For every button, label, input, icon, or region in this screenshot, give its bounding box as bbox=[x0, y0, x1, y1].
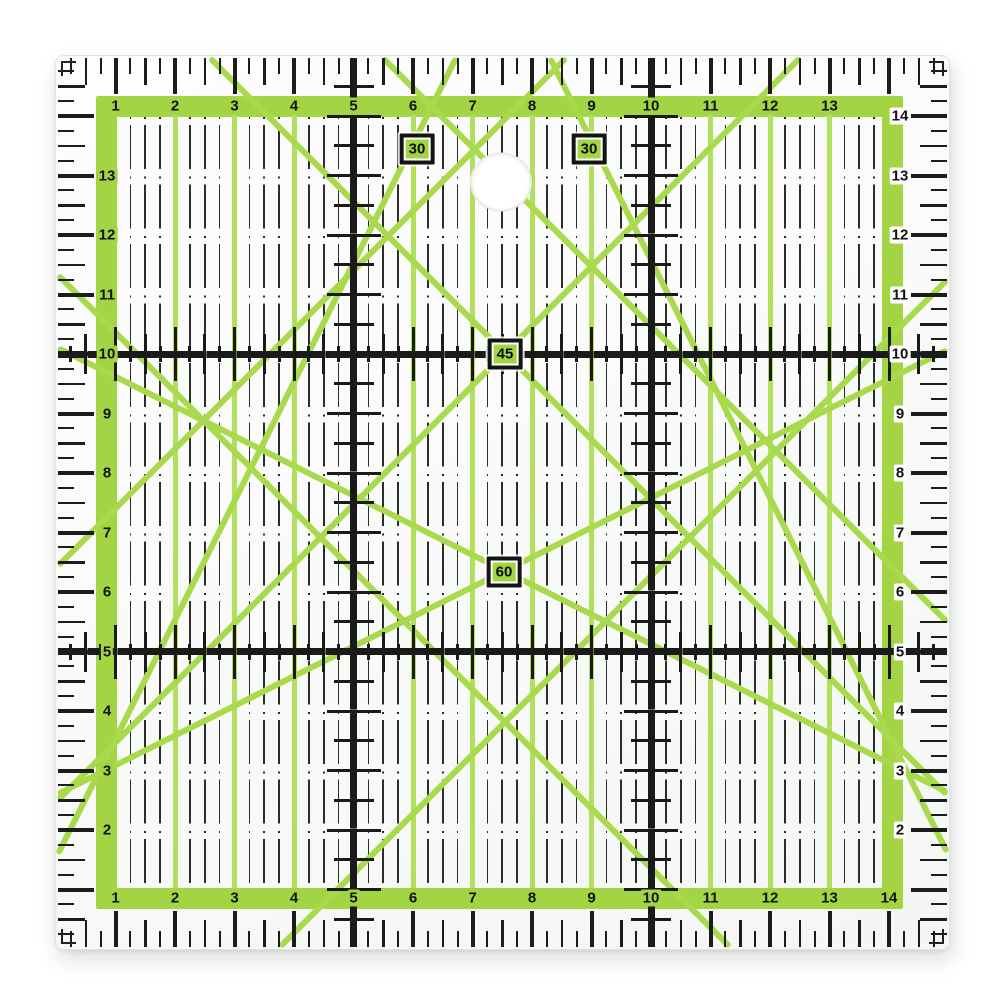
crosshair-tick bbox=[412, 625, 415, 679]
crosshair-tick bbox=[813, 644, 816, 660]
edge-tick-right bbox=[931, 636, 947, 638]
angle-label-30-left: 30 bbox=[406, 140, 429, 159]
edge-tick-bottom bbox=[248, 931, 250, 947]
crosshair-tick bbox=[624, 650, 678, 653]
edge-tick-left bbox=[58, 709, 94, 713]
edge-tick-left bbox=[58, 859, 85, 862]
crosshair-tick bbox=[382, 334, 385, 374]
scale-number-left: 8 bbox=[101, 465, 113, 482]
edge-tick-bottom bbox=[457, 931, 459, 947]
edge-tick-bottom bbox=[918, 920, 921, 947]
edge-tick-right bbox=[911, 233, 947, 237]
edge-tick-bottom bbox=[709, 911, 713, 947]
grid-dash-column bbox=[546, 117, 547, 888]
edge-tick-left bbox=[58, 561, 85, 564]
corner-mark-icon bbox=[61, 61, 76, 76]
edge-tick-top bbox=[129, 58, 131, 74]
edge-tick-right bbox=[920, 204, 947, 207]
edge-tick-top bbox=[338, 58, 340, 74]
edge-tick-top bbox=[858, 58, 861, 85]
edge-tick-bottom bbox=[382, 920, 385, 947]
edge-tick-top bbox=[709, 58, 713, 94]
grid-line-green-vertical bbox=[292, 115, 297, 888]
edge-tick-bottom bbox=[501, 920, 504, 947]
edge-tick-bottom bbox=[576, 931, 578, 947]
crosshair-tick bbox=[456, 346, 459, 362]
edge-tick-top bbox=[814, 58, 816, 74]
crosshair-tick bbox=[783, 346, 786, 362]
edge-tick-right bbox=[911, 888, 947, 892]
edge-tick-right bbox=[931, 576, 947, 578]
crosshair-tick bbox=[278, 346, 281, 362]
edge-tick-top bbox=[308, 58, 310, 74]
edge-tick-right bbox=[920, 145, 947, 148]
edge-tick-bottom bbox=[649, 911, 653, 947]
grid-line-green-vertical bbox=[530, 115, 535, 888]
scale-number-left: 13 bbox=[97, 167, 118, 184]
edge-tick-top bbox=[576, 58, 578, 74]
edge-tick-top bbox=[501, 58, 504, 85]
edge-tick-top bbox=[649, 58, 653, 94]
grid-dash-column bbox=[278, 117, 279, 888]
edge-tick-top bbox=[680, 58, 683, 85]
edge-tick-left bbox=[58, 903, 74, 905]
crosshair-tick bbox=[694, 346, 697, 362]
scale-number-left: 10 bbox=[97, 346, 118, 363]
crosshair-tick bbox=[334, 501, 374, 504]
edge-tick-left bbox=[58, 427, 74, 429]
crosshair-tick bbox=[293, 327, 296, 381]
crosshair-tick bbox=[575, 346, 578, 362]
crosshair-tick bbox=[456, 644, 459, 660]
edge-tick-top bbox=[724, 58, 726, 74]
crosshair-tick bbox=[327, 591, 381, 594]
edge-tick-left bbox=[58, 546, 74, 548]
edge-tick-bottom bbox=[338, 931, 340, 947]
edge-tick-bottom bbox=[605, 931, 607, 947]
grid-dash-column bbox=[487, 117, 488, 888]
edge-tick-right bbox=[931, 606, 947, 608]
grid-dash-column bbox=[576, 117, 577, 888]
edge-tick-bottom bbox=[397, 931, 399, 947]
crosshair-tick bbox=[624, 234, 678, 237]
grid-dash-column bbox=[784, 117, 785, 888]
crosshair-tick bbox=[858, 632, 861, 672]
crosshair-tick bbox=[334, 382, 374, 385]
edge-tick-bottom bbox=[471, 911, 475, 947]
crosshair-tick bbox=[631, 858, 671, 861]
crosshair-tick bbox=[828, 625, 831, 679]
edge-tick-left bbox=[58, 755, 74, 757]
crosshair-tick bbox=[650, 327, 653, 381]
edge-tick-right bbox=[931, 517, 947, 519]
edge-tick-left bbox=[58, 457, 74, 459]
crosshair-tick bbox=[397, 346, 400, 362]
scale-number-right: 7 bbox=[894, 524, 906, 541]
crosshair-tick bbox=[337, 346, 340, 362]
scale-number-left: 4 bbox=[101, 703, 113, 720]
edge-tick-right bbox=[920, 621, 947, 624]
crosshair-tick bbox=[248, 346, 251, 362]
scale-number-top: 5 bbox=[347, 98, 359, 115]
crosshair-tick bbox=[334, 144, 374, 147]
crosshair-tick bbox=[327, 710, 381, 713]
crosshair-tick bbox=[367, 346, 370, 362]
edge-tick-bottom bbox=[263, 920, 266, 947]
edge-tick-right bbox=[931, 160, 947, 162]
scale-number-left: 7 bbox=[101, 524, 113, 541]
edge-tick-left bbox=[58, 368, 74, 370]
grid-line-green-vertical bbox=[708, 115, 713, 888]
edge-tick-left bbox=[58, 204, 85, 207]
edge-tick-bottom bbox=[873, 931, 875, 947]
edge-tick-right bbox=[911, 174, 947, 178]
edge-tick-left bbox=[58, 517, 74, 519]
crosshair-tick bbox=[334, 561, 374, 564]
scale-number-right: 3 bbox=[894, 762, 906, 779]
edge-tick-bottom bbox=[411, 911, 415, 947]
scale-number-top: 2 bbox=[169, 98, 181, 115]
edge-tick-top bbox=[382, 58, 385, 85]
edge-tick-top bbox=[292, 58, 296, 94]
crosshair-tick bbox=[334, 323, 374, 326]
edge-tick-right bbox=[931, 695, 947, 697]
edge-tick-right bbox=[911, 352, 947, 356]
edge-tick-top bbox=[530, 58, 534, 94]
edge-tick-top bbox=[204, 58, 207, 85]
crosshair-tick bbox=[620, 334, 623, 374]
edge-tick-right bbox=[920, 323, 947, 326]
edge-tick-top bbox=[873, 58, 875, 74]
crosshair-tick bbox=[843, 644, 846, 660]
crosshair-tick bbox=[888, 625, 891, 679]
crosshair-tick bbox=[624, 115, 678, 118]
edge-tick-bottom bbox=[530, 911, 534, 947]
scale-number-right: 4 bbox=[894, 703, 906, 720]
scale-number-bottom: 2 bbox=[169, 890, 181, 907]
crosshair-tick bbox=[218, 346, 221, 362]
edge-tick-right bbox=[911, 650, 947, 654]
edge-tick-top bbox=[620, 58, 623, 85]
edge-tick-right bbox=[920, 383, 947, 386]
edge-tick-right bbox=[931, 427, 947, 429]
crosshair-tick bbox=[769, 625, 772, 679]
scale-number-bottom: 8 bbox=[526, 890, 538, 907]
edge-tick-bottom bbox=[858, 920, 861, 947]
scale-number-bottom: 12 bbox=[760, 890, 781, 907]
edge-tick-bottom bbox=[635, 931, 637, 947]
crosshair-tick bbox=[739, 632, 742, 672]
edge-tick-right bbox=[911, 709, 947, 713]
crosshair-tick bbox=[709, 625, 712, 679]
edge-tick-left bbox=[58, 725, 74, 727]
edge-tick-bottom bbox=[189, 931, 191, 947]
edge-tick-left bbox=[58, 918, 85, 921]
scale-number-bottom: 5 bbox=[347, 890, 359, 907]
crosshair-tick bbox=[322, 334, 325, 374]
edge-tick-bottom bbox=[278, 931, 280, 947]
edge-tick-bottom bbox=[887, 911, 891, 947]
crosshair-tick bbox=[545, 346, 548, 362]
edge-tick-bottom bbox=[323, 920, 326, 947]
edge-tick-right bbox=[911, 293, 947, 297]
grid-dash-column bbox=[130, 117, 131, 888]
scale-number-bottom: 10 bbox=[641, 890, 662, 907]
grid-dash-column bbox=[427, 117, 428, 888]
crosshair-tick bbox=[813, 346, 816, 362]
crosshair-tick bbox=[397, 644, 400, 660]
crosshair-tick bbox=[426, 346, 429, 362]
crosshair-tick bbox=[873, 346, 876, 362]
crosshair-tick bbox=[114, 625, 117, 679]
edge-tick-bottom bbox=[754, 931, 756, 947]
grid-dash-column bbox=[739, 117, 741, 888]
edge-tick-top bbox=[918, 58, 921, 85]
scale-number-right: 14 bbox=[890, 108, 911, 125]
edge-tick-top bbox=[590, 58, 594, 94]
edge-tick-right bbox=[911, 531, 947, 535]
edge-tick-right bbox=[931, 219, 947, 221]
green-frame-band bbox=[96, 96, 903, 909]
crosshair-tick bbox=[334, 620, 374, 623]
edge-tick-bottom bbox=[100, 931, 102, 947]
edge-tick-bottom bbox=[219, 931, 221, 947]
crosshair-tick bbox=[486, 644, 489, 660]
crosshair-tick bbox=[620, 632, 623, 672]
edge-tick-left bbox=[58, 769, 94, 773]
grid-dash-column bbox=[858, 117, 860, 888]
edge-tick-right bbox=[911, 769, 947, 773]
edge-tick-bottom bbox=[159, 931, 161, 947]
crosshair-tick bbox=[441, 334, 444, 374]
crosshair-tick bbox=[590, 625, 593, 679]
scale-number-bottom: 13 bbox=[819, 890, 840, 907]
edge-tick-left bbox=[58, 293, 94, 297]
edge-tick-top bbox=[85, 58, 88, 85]
crosshair-tick bbox=[203, 334, 206, 374]
crosshair-tick bbox=[545, 644, 548, 660]
crosshair-tick bbox=[724, 644, 727, 660]
crosshair-tick bbox=[334, 680, 374, 683]
edge-tick-top bbox=[427, 58, 429, 74]
edge-tick-left bbox=[58, 888, 94, 892]
crosshair-tick bbox=[334, 858, 374, 861]
edge-tick-right bbox=[931, 665, 947, 667]
crosshair-tick bbox=[624, 591, 678, 594]
crosshair-tick bbox=[352, 327, 355, 381]
crosshair-tick bbox=[631, 144, 671, 147]
crosshair-tick bbox=[412, 327, 415, 381]
edge-tick-left bbox=[58, 531, 94, 535]
edge-tick-left bbox=[58, 621, 85, 624]
edge-tick-bottom bbox=[665, 931, 667, 947]
grid-dash-column bbox=[159, 117, 160, 888]
grid-dash-column bbox=[144, 117, 146, 888]
edge-tick-bottom bbox=[903, 931, 905, 947]
crosshair-tick bbox=[739, 334, 742, 374]
scale-number-left: 5 bbox=[101, 643, 113, 660]
edge-tick-right bbox=[931, 100, 947, 102]
edge-tick-left bbox=[58, 799, 85, 802]
edge-tick-left bbox=[58, 174, 94, 178]
edge-tick-right bbox=[931, 903, 947, 905]
edge-tick-right bbox=[931, 784, 947, 786]
crosshair-tick bbox=[679, 632, 682, 672]
scale-number-bottom: 6 bbox=[407, 890, 419, 907]
edge-tick-left bbox=[58, 279, 74, 281]
edge-tick-right bbox=[911, 114, 947, 118]
crosshair-tick bbox=[327, 412, 381, 415]
edge-tick-bottom bbox=[233, 911, 237, 947]
corner-mark-icon bbox=[61, 929, 76, 944]
edge-tick-left bbox=[58, 160, 74, 162]
grid-dash-column bbox=[606, 117, 607, 888]
crosshair-tick bbox=[334, 442, 374, 445]
scale-number-top: 8 bbox=[526, 98, 538, 115]
crosshair-tick bbox=[159, 346, 162, 362]
hanging-hole bbox=[470, 153, 532, 212]
grid-dash-column bbox=[397, 117, 398, 888]
angle-label-45: 45 bbox=[494, 345, 517, 364]
edge-tick-left bbox=[58, 606, 74, 608]
scale-number-left: 9 bbox=[101, 405, 113, 422]
crosshair-tick bbox=[709, 327, 712, 381]
edge-tick-left bbox=[58, 189, 74, 191]
grid-dash-column bbox=[680, 117, 682, 888]
angle-label-60: 60 bbox=[493, 563, 516, 582]
crosshair-tick bbox=[754, 346, 757, 362]
edge-tick-top bbox=[278, 58, 280, 74]
edge-tick-right bbox=[920, 680, 947, 683]
scale-number-bottom: 7 bbox=[466, 890, 478, 907]
edge-tick-right bbox=[920, 264, 947, 267]
edge-tick-top bbox=[486, 58, 488, 74]
edge-tick-right bbox=[931, 546, 947, 548]
edge-tick-top bbox=[516, 58, 518, 74]
edge-tick-bottom bbox=[784, 931, 786, 947]
crosshair-tick bbox=[624, 710, 678, 713]
crosshair-tick bbox=[624, 472, 678, 475]
edge-tick-right bbox=[920, 740, 947, 743]
crosshair-tick bbox=[188, 346, 191, 362]
edge-tick-right bbox=[920, 918, 947, 921]
edge-tick-bottom bbox=[561, 920, 564, 947]
crosshair-tick bbox=[798, 334, 801, 374]
crosshair-tick bbox=[560, 334, 563, 374]
edge-tick-left bbox=[58, 130, 74, 132]
edge-tick-right bbox=[911, 828, 947, 832]
crosshair-tick bbox=[624, 531, 678, 534]
edge-tick-top bbox=[189, 58, 191, 74]
edge-tick-right bbox=[931, 457, 947, 459]
crosshair-tick bbox=[174, 327, 177, 381]
edge-tick-left bbox=[58, 398, 74, 400]
scale-number-top: 11 bbox=[701, 98, 721, 115]
crosshair-tick bbox=[631, 561, 671, 564]
edge-tick-top bbox=[828, 58, 832, 94]
edge-tick-left bbox=[58, 114, 94, 118]
scale-number-top: 6 bbox=[407, 98, 419, 115]
scale-number-left: 3 bbox=[101, 762, 113, 779]
edge-tick-top bbox=[248, 58, 250, 74]
edge-tick-bottom bbox=[442, 920, 445, 947]
scale-number-top: 12 bbox=[760, 98, 781, 115]
crosshair-tick bbox=[858, 334, 861, 374]
edge-tick-bottom bbox=[680, 920, 683, 947]
crosshair-tick bbox=[590, 327, 593, 381]
angle-box-45: 45 bbox=[488, 339, 523, 370]
edge-tick-left bbox=[58, 828, 94, 832]
scale-number-right: 13 bbox=[890, 167, 911, 184]
edge-tick-left bbox=[58, 695, 74, 697]
grid-dash-column bbox=[501, 117, 503, 888]
scale-number-left: 11 bbox=[97, 286, 117, 303]
edge-tick-right bbox=[931, 398, 947, 400]
crosshair-tick bbox=[624, 293, 678, 296]
scale-number-top: 13 bbox=[819, 98, 840, 115]
crosshair-tick bbox=[624, 769, 678, 772]
crosshair-tick bbox=[188, 644, 191, 660]
edge-tick-right bbox=[931, 814, 947, 816]
edge-tick-bottom bbox=[292, 911, 296, 947]
edge-tick-right bbox=[931, 844, 947, 846]
edge-tick-left bbox=[58, 590, 94, 594]
angle-box-30-left: 30 bbox=[400, 134, 435, 165]
edge-tick-right bbox=[931, 368, 947, 370]
edge-tick-left bbox=[58, 844, 74, 846]
edge-tick-bottom bbox=[620, 920, 623, 947]
edge-tick-left bbox=[58, 352, 94, 356]
edge-tick-top bbox=[695, 58, 697, 74]
scale-number-bottom: 3 bbox=[228, 890, 240, 907]
grid-dash-column bbox=[844, 117, 845, 888]
scale-number-right: 6 bbox=[894, 584, 906, 601]
edge-tick-left bbox=[58, 740, 85, 743]
crosshair-tick bbox=[293, 625, 296, 679]
crosshair-tick bbox=[631, 739, 671, 742]
crosshair-tick bbox=[631, 442, 671, 445]
crosshair-tick bbox=[471, 327, 474, 381]
edge-tick-top bbox=[561, 58, 564, 85]
grid-dash-column bbox=[799, 117, 801, 888]
grid-line-green-vertical bbox=[173, 115, 178, 888]
edge-tick-left bbox=[58, 814, 74, 816]
edge-tick-right bbox=[920, 442, 947, 445]
crosshair-tick bbox=[516, 644, 519, 660]
edge-tick-bottom bbox=[768, 911, 772, 947]
edge-tick-left bbox=[58, 487, 74, 489]
edge-tick-left bbox=[58, 502, 85, 505]
crosshair-tick bbox=[327, 115, 381, 118]
grid-dash-column bbox=[189, 117, 190, 888]
crosshair-tick bbox=[327, 293, 381, 296]
edge-tick-left bbox=[58, 471, 94, 475]
crosshair-tick bbox=[382, 632, 385, 672]
edge-tick-left bbox=[58, 636, 74, 638]
crosshair-tick bbox=[441, 632, 444, 672]
edge-tick-left bbox=[58, 308, 74, 310]
edge-tick-top bbox=[397, 58, 399, 74]
crosshair-tick bbox=[828, 327, 831, 381]
edge-tick-top bbox=[442, 58, 445, 85]
crosshair-tick bbox=[624, 412, 678, 415]
crosshair-tick bbox=[129, 346, 132, 362]
grid-dash-column bbox=[442, 117, 444, 888]
edge-tick-top bbox=[665, 58, 667, 74]
scale-number-right: 2 bbox=[894, 822, 906, 839]
edge-tick-right bbox=[920, 561, 947, 564]
crosshair-tick bbox=[174, 625, 177, 679]
